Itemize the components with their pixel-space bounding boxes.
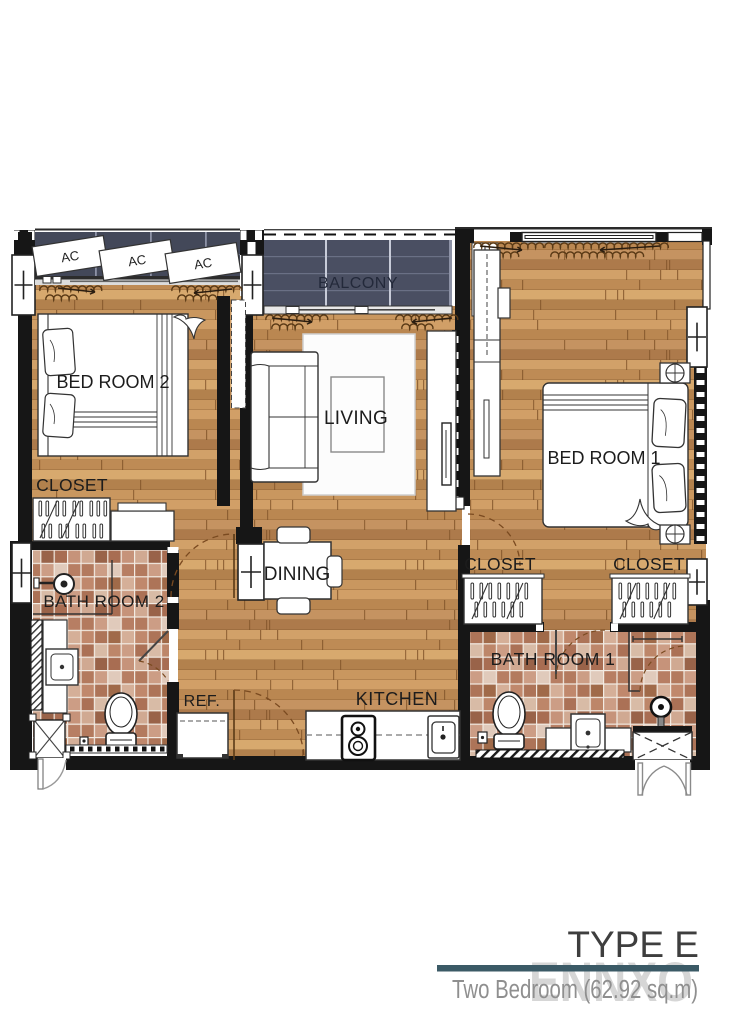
svg-text:BALCONY: BALCONY	[318, 275, 398, 292]
svg-text:AC: AC	[60, 248, 80, 266]
svg-text:REF.: REF.	[184, 693, 221, 710]
svg-text:BATH ROOM 2: BATH ROOM 2	[43, 592, 164, 611]
svg-text:CLOSET: CLOSET	[36, 475, 108, 495]
svg-text:BED ROOM 1: BED ROOM 1	[547, 448, 660, 468]
svg-text:LIVING: LIVING	[324, 408, 388, 429]
svg-text:AC: AC	[127, 252, 147, 270]
svg-text:TYPE E: TYPE E	[567, 924, 699, 965]
svg-text:CLOSET: CLOSET	[613, 554, 685, 574]
svg-text:AC: AC	[193, 255, 213, 273]
svg-text:KITCHEN: KITCHEN	[356, 689, 439, 709]
svg-text:Two Bedroom (62.92 sq.m): Two Bedroom (62.92 sq.m)	[452, 976, 698, 1004]
svg-text:CLOSET: CLOSET	[464, 554, 536, 574]
svg-text:DINING: DINING	[264, 564, 331, 585]
svg-text:BED ROOM 2: BED ROOM 2	[56, 372, 169, 392]
svg-text:BATH ROOM 1: BATH ROOM 1	[491, 649, 616, 669]
